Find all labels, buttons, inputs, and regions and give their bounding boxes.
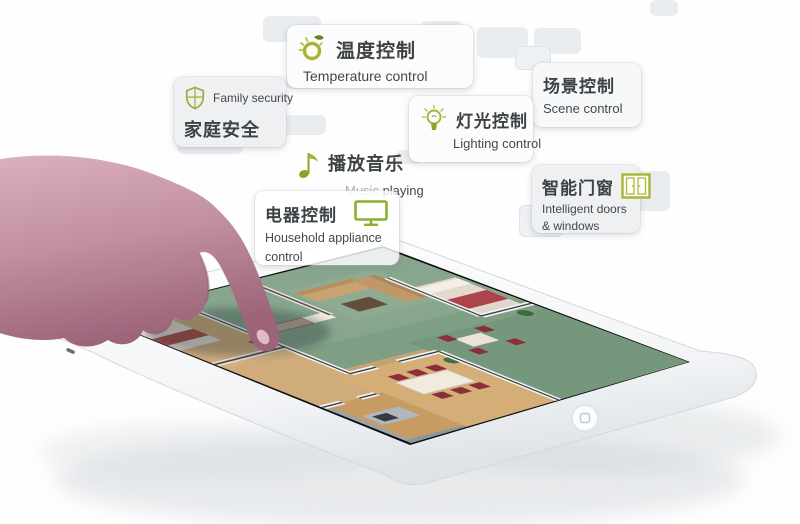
feature-title-en: Lighting control [453, 136, 523, 151]
feature-title-en: Scene control [543, 101, 631, 116]
volume-button [66, 347, 76, 354]
feature-title-en-line1: Household appliance [265, 231, 389, 246]
feature-title-zh: 灯光控制 [456, 107, 528, 132]
feature-title-zh: 智能门窗 [542, 174, 614, 199]
card-intelligent-doors-windows: 智能门窗 Intelligent doors & windows [532, 165, 640, 233]
feature-title-zh: 播放音乐 [328, 150, 404, 176]
leaf [314, 35, 324, 40]
feature-title-zh: 家庭安全 [184, 116, 276, 142]
sun-temperature-icon [297, 33, 329, 65]
feature-title-zh: 场景控制 [543, 72, 615, 97]
card-lighting-control: 灯光控制 Lighting control [409, 96, 533, 162]
feature-title-en: Family security [213, 91, 293, 105]
card-family-security: Family security 家庭安全 [174, 77, 286, 147]
double-door-icon [621, 173, 651, 199]
monitor-icon [353, 199, 389, 227]
home-button [572, 405, 598, 431]
feature-title-en-line2: & windows [542, 219, 630, 233]
music-note-icon [297, 146, 321, 180]
feature-title-en-line2: control [265, 250, 389, 265]
moon-icon [622, 71, 646, 97]
promo-stage: 温度控制 Temperature control Family security… [0, 0, 800, 524]
card-household-appliance-control: 电器控制 Household appliance control [255, 191, 399, 265]
feature-title-en-line1: Intelligent doors [542, 202, 630, 216]
shield-icon [184, 85, 206, 111]
feature-title-zh: 温度控制 [336, 36, 416, 63]
card-temperature-control: 温度控制 Temperature control [287, 25, 473, 88]
feature-title-zh: 电器控制 [265, 201, 337, 226]
lightbulb-icon [419, 104, 449, 134]
feature-title-en: Temperature control [303, 68, 463, 84]
card-scene-control: 场景控制 Scene control [533, 63, 641, 127]
